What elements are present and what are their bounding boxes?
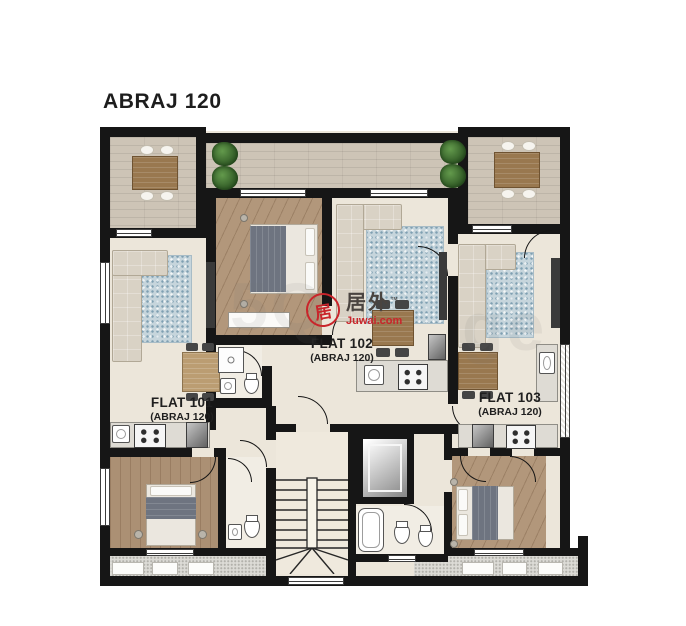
- wall: [407, 432, 414, 504]
- window: [100, 468, 110, 526]
- wall: [444, 432, 452, 460]
- ghost-watermark: ge: [462, 288, 547, 366]
- blanket: [472, 486, 498, 540]
- wall: [100, 448, 192, 457]
- juwai-watermark: 居 居外™ Juwai.com: [306, 293, 402, 328]
- shower: [218, 347, 244, 373]
- tv-unit: [439, 252, 447, 320]
- chair: [395, 348, 409, 357]
- planter: [538, 562, 563, 575]
- planter: [152, 562, 178, 575]
- stove: [398, 364, 428, 390]
- wall: [356, 432, 363, 504]
- wall: [214, 448, 226, 457]
- wall: [196, 133, 206, 238]
- dining-table: [182, 352, 220, 392]
- plant: [212, 166, 238, 190]
- tv-unit: [206, 262, 215, 328]
- window: [370, 189, 428, 197]
- wall: [560, 127, 570, 556]
- chair: [202, 343, 214, 351]
- chair: [522, 141, 536, 151]
- bathtub: [358, 508, 384, 552]
- planter: [112, 562, 144, 575]
- window: [474, 549, 524, 556]
- chair: [160, 145, 174, 155]
- wall: [448, 276, 458, 404]
- juwai-brand: 居外: [346, 292, 390, 314]
- chair: [140, 145, 154, 155]
- trademark-symbol: ™: [390, 296, 398, 305]
- flat101-label: FLAT 101 (ABRAJ 120): [127, 395, 237, 423]
- fridge: [186, 422, 208, 448]
- flat-name: FLAT 101: [127, 395, 237, 411]
- chair: [160, 191, 174, 201]
- tv-unit: [551, 258, 560, 328]
- flat-name: FLAT 103: [455, 390, 565, 406]
- window: [472, 225, 512, 233]
- juwai-domain: Juwai.com: [346, 314, 402, 328]
- wall: [356, 497, 414, 504]
- nightstand: [450, 478, 458, 486]
- planter: [502, 562, 527, 575]
- wall: [196, 133, 468, 143]
- wall: [534, 448, 560, 456]
- wall: [218, 457, 226, 548]
- balcony-top: [206, 143, 458, 188]
- fridge: [472, 424, 494, 448]
- planter: [188, 562, 214, 575]
- plant: [440, 140, 466, 164]
- page-title: ABRAJ 120: [103, 90, 222, 114]
- flat103-label: FLAT 103 (ABRAJ 120): [455, 390, 565, 418]
- wall: [458, 127, 566, 137]
- window: [388, 555, 416, 562]
- wall: [448, 196, 458, 244]
- nightstand: [134, 530, 143, 539]
- floorplan-page: { "title": "ABRAJ 120", "flats": [ {"nam…: [0, 0, 686, 626]
- chair: [140, 191, 154, 201]
- window: [240, 189, 306, 197]
- pillow: [458, 489, 468, 511]
- nightstand: [450, 540, 458, 548]
- pillow: [305, 228, 315, 256]
- window: [100, 262, 110, 324]
- kitchen-sink: [112, 425, 130, 443]
- pillow: [458, 514, 468, 536]
- window: [116, 229, 152, 237]
- nightstand: [198, 530, 207, 539]
- wall: [356, 432, 414, 439]
- wall: [578, 536, 588, 582]
- wall: [452, 448, 468, 456]
- washbasin: [220, 378, 236, 394]
- stove: [134, 424, 166, 448]
- fridge: [428, 334, 446, 360]
- planter: [462, 562, 494, 575]
- window: [288, 577, 344, 585]
- kitchen-sink: [364, 365, 384, 385]
- chair: [186, 343, 198, 351]
- pillow: [150, 486, 192, 496]
- wall: [100, 576, 588, 586]
- dining-table: [494, 152, 540, 188]
- flat-sub: (ABRAJ 120): [455, 406, 565, 418]
- chair: [522, 189, 536, 199]
- wall: [100, 127, 206, 137]
- flat-sub: (ABRAJ 120): [287, 352, 397, 364]
- chair: [501, 189, 515, 199]
- wall: [266, 406, 276, 440]
- plant: [212, 142, 238, 166]
- wall: [348, 432, 356, 576]
- washbasin: [228, 524, 242, 540]
- juwai-seal-icon: 居: [303, 290, 342, 329]
- juwai-text: 居外™ Juwai.com: [346, 293, 402, 328]
- staircase: [276, 432, 348, 574]
- chair: [501, 141, 515, 151]
- flat-sub: (ABRAJ 120): [127, 411, 237, 423]
- window: [146, 549, 194, 556]
- wall: [490, 448, 512, 456]
- dining-table: [132, 156, 178, 190]
- blanket: [146, 497, 196, 519]
- plant: [440, 164, 466, 188]
- wall: [266, 468, 276, 576]
- sofa: [112, 250, 168, 276]
- nightstand: [240, 214, 248, 222]
- elevator: [363, 439, 407, 497]
- stove: [506, 425, 536, 449]
